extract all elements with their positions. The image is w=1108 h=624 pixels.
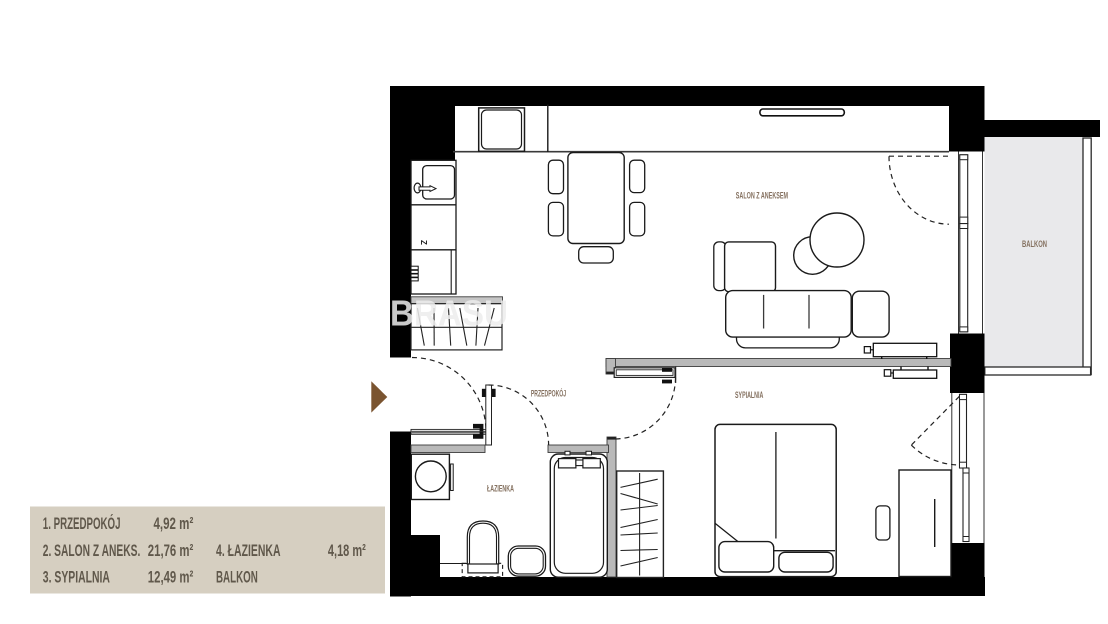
- svg-text:4,92 m²: 4,92 m²: [154, 514, 194, 533]
- svg-text:1. PRZEDPOKÓJ: 1. PRZEDPOKÓJ: [43, 514, 121, 533]
- svg-text:Z: Z: [419, 240, 428, 245]
- svg-text:BRASU: BRASU: [390, 293, 508, 334]
- svg-text:21,76 m²: 21,76 m²: [148, 541, 194, 560]
- svg-text:12,49 m²: 12,49 m²: [148, 568, 194, 587]
- svg-text:PRZEDPOKÓJ: PRZEDPOKÓJ: [531, 388, 566, 399]
- svg-text:2. SALON Z ANEKS.: 2. SALON Z ANEKS.: [43, 541, 141, 560]
- svg-text:SYPIALNIA: SYPIALNIA: [735, 389, 763, 400]
- svg-text:4. ŁAZIENKA: 4. ŁAZIENKA: [216, 541, 281, 560]
- svg-text:BALKON: BALKON: [1022, 238, 1047, 249]
- svg-text:ŁAZIENKA: ŁAZIENKA: [487, 482, 514, 493]
- svg-text:SALON Z ANEKSEM: SALON Z ANEKSEM: [736, 190, 788, 201]
- svg-text:3. SYPIALNIA: 3. SYPIALNIA: [43, 568, 110, 587]
- svg-text:BALKON: BALKON: [216, 568, 258, 587]
- svg-text:4,18 m²: 4,18 m²: [328, 541, 366, 560]
